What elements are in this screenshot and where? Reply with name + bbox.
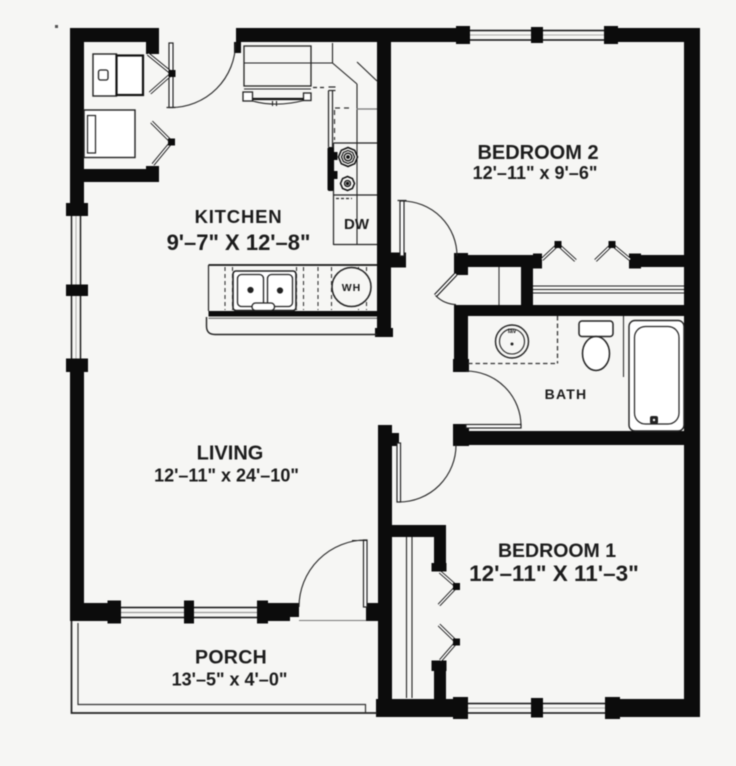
svg-text:BEDROOM 1: BEDROOM 1 — [498, 540, 616, 562]
svg-text:12'–11" X 11'–3": 12'–11" X 11'–3" — [469, 561, 639, 586]
svg-text:9'–7" X 12'–8": 9'–7" X 12'–8" — [167, 230, 311, 255]
svg-text:LIVING: LIVING — [197, 443, 264, 465]
svg-text:13'–5" x 4'–0": 13'–5" x 4'–0" — [172, 670, 288, 690]
svg-text:PORCH: PORCH — [195, 647, 267, 669]
svg-text:lav: lav — [508, 329, 517, 335]
svg-text:BEDROOM 2: BEDROOM 2 — [477, 142, 598, 164]
svg-text:KITCHEN: KITCHEN — [195, 206, 283, 227]
svg-text:WH: WH — [342, 282, 362, 294]
svg-text:DW: DW — [344, 216, 370, 233]
svg-text:12'–11" x 9'–6": 12'–11" x 9'–6" — [473, 163, 598, 183]
svg-text:12'–11" x 24'–10": 12'–11" x 24'–10" — [154, 466, 299, 486]
svg-text:BATH: BATH — [545, 386, 588, 402]
